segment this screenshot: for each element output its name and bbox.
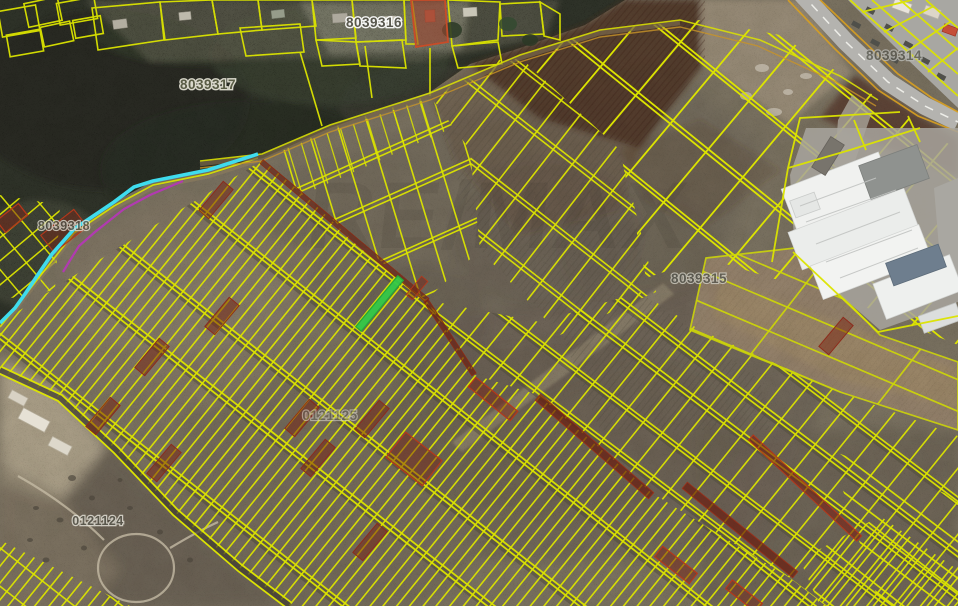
svg-text:0121125: 0121125 (302, 408, 357, 423)
svg-text:0121124: 0121124 (72, 514, 123, 528)
svg-text:8039317: 8039317 (180, 77, 236, 92)
svg-text:8039318: 8039318 (38, 219, 90, 233)
svg-text:8039316: 8039316 (346, 15, 402, 30)
svg-text:8039315: 8039315 (671, 271, 727, 286)
svg-text:8039314: 8039314 (866, 48, 922, 63)
